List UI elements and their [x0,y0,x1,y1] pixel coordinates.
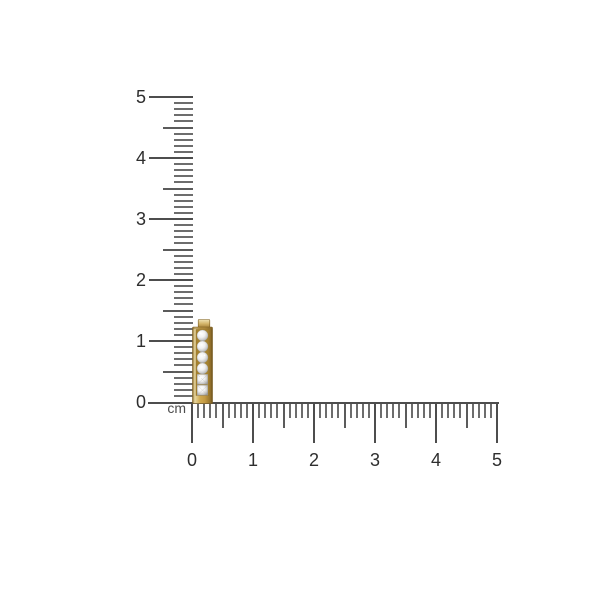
ruler-tick [228,402,230,418]
ruler-tick [149,279,193,281]
ruler-tick [325,402,327,418]
ruler-tick [174,261,193,263]
ruler-tick [174,194,193,196]
ruler-tick [163,310,193,312]
ruler-tick [405,402,407,428]
ruler-tick [264,402,266,418]
ruler-tick [234,402,236,418]
sparkle-highlight [204,354,206,356]
ruler-tick [174,102,193,104]
ruler-tick [283,402,285,428]
ruler-tick [174,346,193,348]
ruler-tick [174,364,193,366]
ruler-tick [222,402,224,428]
ruler-tick [174,383,193,385]
ruler-tick [163,127,193,129]
ruler-tick [174,114,193,116]
ruler-tick [174,334,193,336]
ruler-number: 4 [425,450,447,470]
ruler-tick [174,212,193,214]
ruler-tick [174,200,193,202]
ruler-tick [174,108,193,110]
ruler-tick [386,402,388,418]
diamond-stone [197,352,208,363]
ruler-tick [174,236,193,238]
ruler-tick [331,402,333,418]
ruler-number: 4 [116,148,146,168]
ruler-tick [174,352,193,354]
sparkle-highlight [200,377,202,379]
ruler-tick [149,157,193,159]
ruler-tick [215,402,217,418]
ruler-tick [459,402,461,418]
earring-bar-top-shade [193,327,213,329]
ruler-tick [453,402,455,418]
ruler-tick [174,255,193,257]
ruler-tick [447,402,449,418]
sparkle-highlight [199,332,201,334]
ruler-tick [174,316,193,318]
ruler-tick [174,163,193,165]
ruler-tick [174,322,193,324]
ruler-number: 3 [364,450,386,470]
ruler-tick [174,377,193,379]
diamond-stone [197,341,208,352]
ruler-number: 1 [242,450,264,470]
ruler-tick [174,297,193,299]
ruler-tick [174,389,193,391]
ruler-number: 5 [486,450,508,470]
product-measurement-photo: 543210 012345 cm [0,0,600,600]
ruler-tick [174,120,193,122]
ruler-tick [163,249,193,251]
ruler-tick [368,402,370,418]
ruler-tick [174,224,193,226]
ruler-tick [319,402,321,418]
ruler-tick [466,402,468,428]
ruler-tick [163,188,193,190]
ruler-tick [380,402,382,418]
ruler-tick [174,230,193,232]
ruler-tick [149,340,193,342]
ruler-number: 2 [303,450,325,470]
ruler-tick [356,402,358,418]
ruler-tick [435,402,437,443]
ruler-number: 5 [116,87,146,107]
ruler-tick [362,402,364,418]
ruler-tick [337,402,339,418]
ruler-tick [411,402,413,418]
ruler-tick [174,328,193,330]
ruler-tick [374,402,376,443]
ruler-tick [197,402,199,418]
ruler-number: 2 [116,270,146,290]
ruler-tick [191,402,193,443]
earring-image [192,319,213,404]
ruler-tick [174,145,193,147]
earring-image [192,319,213,404]
ruler-number: 1 [116,331,146,351]
ruler-tick [174,267,193,269]
ruler-tick [490,402,492,418]
ruler-tick [209,402,211,418]
ruler-tick [174,358,193,360]
ruler-tick [174,151,193,153]
ruler-tick [174,175,193,177]
ruler-tick [174,303,193,305]
ruler-tick [174,206,193,208]
diamond-stone [197,363,208,374]
ruler-tick [149,96,193,98]
ruler-tick [484,402,486,418]
ruler-tick [174,242,193,244]
ruler-tick [174,139,193,141]
ruler-tick [392,402,394,418]
ruler-tick [350,402,352,418]
ruler-number: 0 [181,450,203,470]
ruler-tick [301,402,303,418]
ruler-unit-label: cm [146,401,186,415]
ruler-tick [258,402,260,418]
ruler-tick [307,402,309,418]
ruler-tick [417,402,419,418]
ruler-tick [149,218,193,220]
ruler-tick [174,181,193,183]
ruler-tick [174,291,193,293]
ruler-tick [270,402,272,418]
ruler-tick [429,402,431,418]
ruler-tick [174,273,193,275]
ruler-tick [423,402,425,418]
ruler-tick [276,402,278,418]
ruler-tick [174,395,193,397]
ruler-tick [496,402,498,443]
ruler-tick [246,402,248,418]
ruler-tick [163,371,193,373]
ruler-number: 0 [116,392,146,412]
ruler-tick [295,402,297,418]
ruler-tick [441,402,443,418]
ruler-tick [174,169,193,171]
ruler-tick [478,402,480,418]
ruler-tick [289,402,291,418]
ruler-tick [174,285,193,287]
ruler-tick [313,402,315,443]
ruler-tick [174,133,193,135]
ruler-tick [472,402,474,418]
ruler-tick [344,402,346,428]
diamond-stone [197,330,208,341]
ruler-number: 3 [116,209,146,229]
ruler-tick [398,402,400,418]
ruler-tick [203,402,205,418]
ruler-tick [240,402,242,418]
ruler-tick [252,402,254,443]
